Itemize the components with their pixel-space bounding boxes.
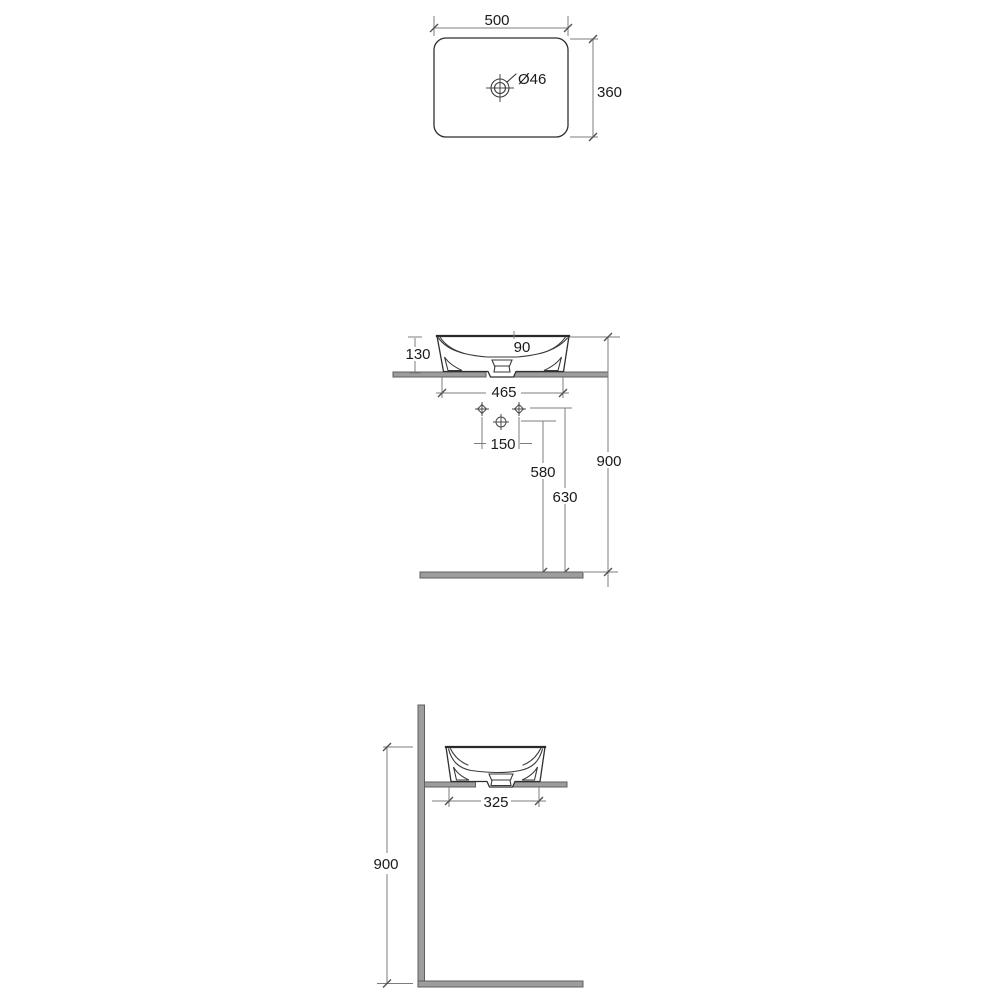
drain-connection-center	[493, 414, 509, 430]
dimension-base-depth-325: 325	[432, 787, 546, 811]
dimension-height-900-front: 900	[584, 333, 622, 587]
supply-connection-left	[475, 402, 489, 416]
front-view: 130 90 465	[393, 331, 622, 587]
dim-label-inner-depth: 90	[514, 339, 531, 356]
counter-surface-left	[425, 782, 476, 787]
dim-label-basin-height: 130	[405, 346, 430, 363]
counter-surface-right	[510, 782, 567, 787]
dim-label-depth: 360	[597, 84, 622, 101]
counter-surface-right	[514, 372, 608, 377]
counter-surface-left	[393, 372, 486, 377]
dim-label-drain-height: 580	[530, 464, 555, 481]
dim-label-spacing: 150	[490, 436, 515, 453]
washbasin-technical-drawing: 500 Ø46 360	[0, 0, 1000, 1000]
dim-label-tap-hole: Ø46	[518, 71, 546, 88]
top-view: 500 Ø46 360	[430, 12, 622, 141]
supply-connection-right	[512, 402, 526, 416]
dim-label-base-depth: 325	[483, 794, 508, 811]
dimension-inner-depth-90: 90	[514, 331, 531, 356]
wall-surface	[418, 705, 425, 987]
dimension-height-900-side: 900	[373, 743, 413, 988]
dim-label-supply-height: 630	[552, 489, 577, 506]
floor-surface-side	[418, 981, 583, 987]
dimension-height-580: 580	[521, 421, 556, 576]
dimension-height-630: 630	[530, 408, 578, 576]
dimension-depth-360: 360	[570, 35, 622, 141]
side-view: 325 900	[373, 705, 583, 988]
dim-label-width: 500	[484, 12, 509, 29]
dimension-height-130: 130	[405, 337, 430, 373]
dim-label-base-width: 465	[491, 384, 516, 401]
technical-drawing-page: 500 Ø46 360	[0, 0, 1000, 1000]
floor-surface-front	[420, 572, 583, 578]
dim-label-rim-height-side: 900	[373, 856, 398, 873]
dimension-width-500: 500	[430, 12, 572, 36]
dimension-base-width-465: 465	[436, 377, 569, 401]
dim-label-rim-height-front: 900	[596, 453, 621, 470]
